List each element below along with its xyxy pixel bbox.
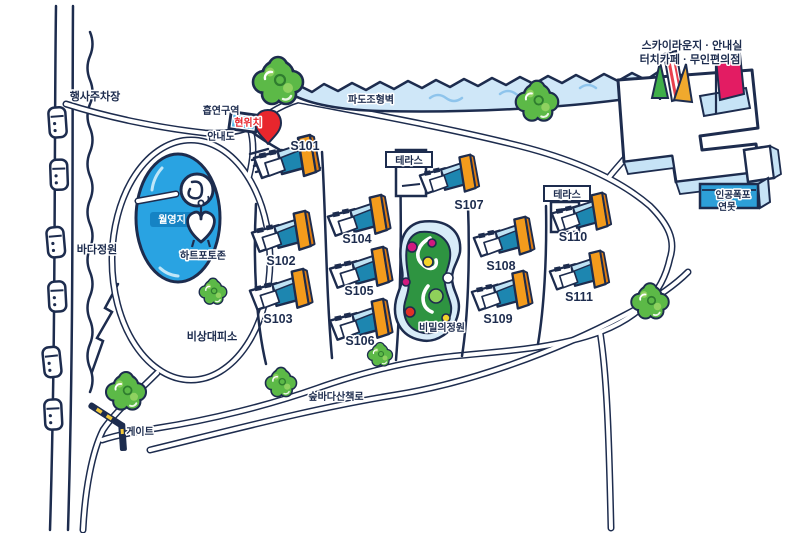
label-sea-garden: 바다정원 [77,242,117,256]
label-artificial-waterfall-line2: 연못 [718,202,736,213]
label-heart-photo-zone: 하트포토존 [180,249,226,262]
label-gate: 게이트 [126,425,154,438]
label-wave-wall: 파도조형벽 [348,93,394,106]
cabin-s111 [550,251,609,290]
label-terrace-s107: 테라스 [395,154,423,167]
label-secret-garden: 비밀의정원 [419,321,465,334]
shuttle-vehicle-icon [44,399,63,430]
cabin-s105 [330,247,393,288]
shuttle-vehicle-icon [42,346,62,378]
label-building-s107: S107 [454,198,483,212]
label-building-s111: S111 [565,290,593,304]
label-smoking-area: 흡연구역 [203,104,240,117]
shuttle-vehicle-icon [48,281,67,312]
label-sky-lounge-line1: 스카이라운지 · 안내실 [642,38,743,52]
label-building-s108: S108 [486,259,515,273]
complex-annex [744,146,774,182]
resort-map: 행사주차장 흡연구역 안내도 현위치 파도조형벽 스카이라운지 · 안내실 터치… [0,0,800,533]
tree-icon [266,367,297,396]
label-artificial-waterfall-line1: 인공폭포 [716,190,751,201]
shuttle-vehicle-icon [46,227,66,258]
tree-icon [253,57,303,104]
label-building-s105: S105 [344,284,373,298]
label-terrace-s110: 테라스 [553,188,581,201]
cabin-s103 [250,269,313,310]
cabin-s108 [474,217,535,257]
sky-lounge-complex [618,51,781,208]
label-building-s103: S103 [263,312,292,326]
shuttle-vehicle-icon [48,107,67,138]
tree-icon [199,278,227,304]
cabin-s109 [472,271,533,311]
label-building-s110: S110 [559,230,588,244]
label-emergency-shelter: 비상대피소 [187,329,238,343]
label-building-s101: S101 [290,139,319,153]
label-event-parking: 행사주차장 [70,89,121,103]
label-pond: 월영지 [158,213,186,226]
label-building-s102: S102 [266,254,295,268]
label-building-s106: S106 [345,334,374,348]
label-building-s104: S104 [342,232,371,246]
label-forest-trail: 숲바다산책로 [308,390,363,403]
label-current-location: 현위치 [234,116,262,129]
label-sky-lounge-line2: 터치카페 · 무인편의점 [640,52,741,66]
tree-icon [106,372,146,410]
label-building-s109: S109 [483,312,512,326]
shuttle-vehicle-icon [50,159,68,190]
cabin-s104 [328,195,391,236]
label-info-board: 안내도 [207,130,235,143]
shoreline-wavy-line [88,32,93,392]
left-road-with-vehicles [42,6,118,530]
